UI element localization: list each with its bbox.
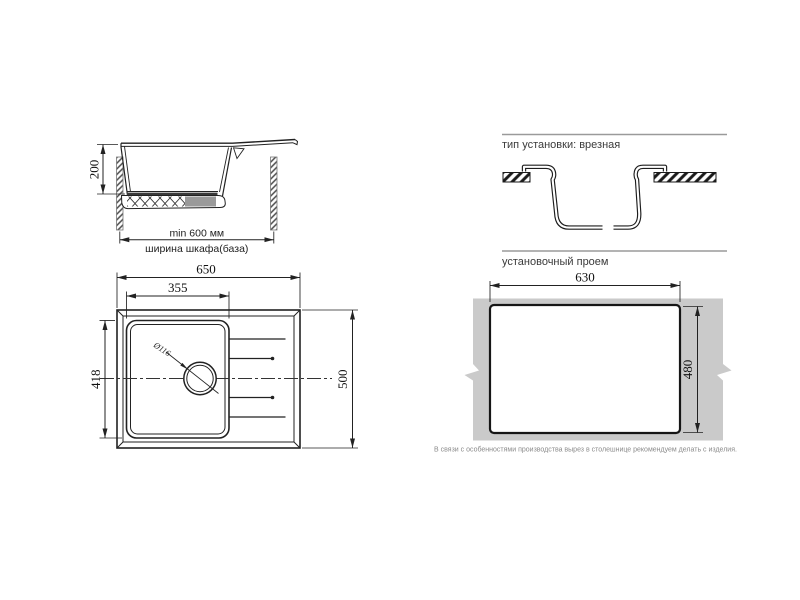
min-cabinet-width-label: min 600 мм	[169, 227, 224, 239]
dim-depth-500: 500	[335, 370, 350, 390]
cutout-heading: установочный проем	[502, 256, 608, 268]
cabinet-wall-right	[271, 157, 278, 230]
production-note: В связи с особенностями производства выр…	[434, 446, 737, 454]
bottom-crosshatch	[127, 197, 185, 207]
countertop-section-left	[503, 173, 530, 183]
countertop-section-right	[654, 173, 716, 183]
cutout-panel: установочный проем 630 480 В связи с осо…	[434, 251, 737, 454]
drawing-svg: 200 min 600 мм ширина шкафа(база)	[0, 0, 800, 600]
dim-cutout-width-630: 630	[575, 270, 595, 285]
dim-depth-200: 200	[87, 160, 102, 180]
side-section-view: 200 min 600 мм ширина шкафа(база)	[87, 140, 298, 255]
cutout-opening	[490, 305, 680, 433]
drainboard-bracket	[234, 148, 245, 159]
dim-cutout-height-480: 480	[680, 360, 695, 380]
top-plan-view: Ø116 650 355 418 500	[88, 262, 358, 449]
sink-cross-section	[524, 167, 665, 228]
dim-width-650: 650	[196, 262, 216, 277]
cabinet-wall-left	[117, 157, 124, 230]
dim-bowl-width-355: 355	[168, 280, 188, 295]
dim-bowl-depth-418: 418	[88, 370, 103, 390]
install-type-heading: тип установки: врезная	[502, 139, 620, 151]
install-type-panel: тип установки: врезная	[502, 135, 727, 228]
bottom-gray-band	[185, 197, 216, 207]
cabinet-width-label: ширина шкафа(база)	[145, 243, 248, 255]
sink-technical-drawing: 200 min 600 мм ширина шкафа(база)	[0, 0, 800, 600]
